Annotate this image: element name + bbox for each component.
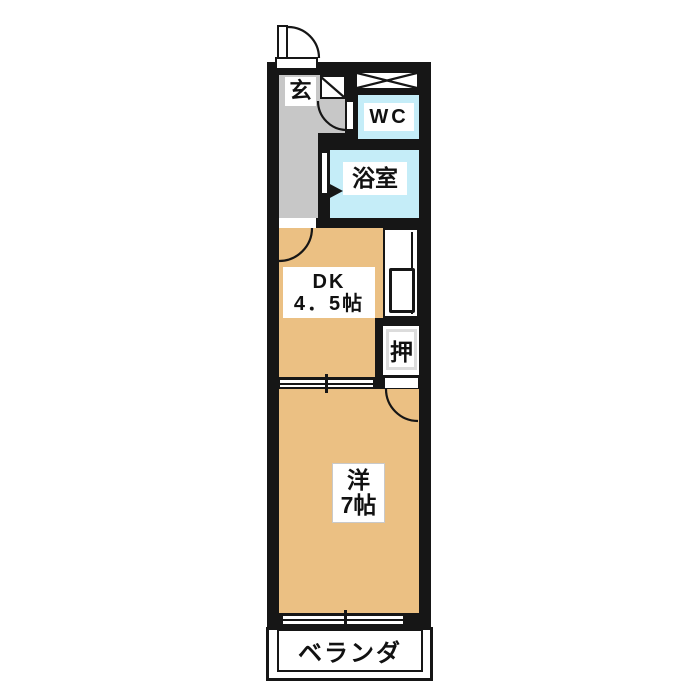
sliding-partition-tick	[325, 374, 328, 393]
closet-left-wall	[375, 318, 383, 389]
western-room-label-size: 7帖	[341, 493, 377, 518]
closet-label-box: 押	[386, 329, 417, 370]
shoe-cabinet-symbol	[320, 75, 346, 99]
veranda: ベランダ	[277, 629, 423, 672]
dk-label-size: 4．5帖	[294, 293, 364, 315]
closet-label: 押	[390, 333, 413, 367]
dk-label: DK 4．5帖	[283, 267, 375, 318]
entrance-door-arc	[288, 27, 319, 58]
genkan-label: 玄	[285, 77, 316, 106]
wc-door-leaf	[345, 100, 355, 131]
dk-door-opening	[279, 218, 316, 228]
entrance-door-leaf	[277, 25, 288, 59]
kitchen-sink	[389, 268, 415, 313]
wc-label: WC	[364, 103, 414, 131]
western-room-label: 洋 7帖	[332, 463, 385, 523]
bath-label: 浴室	[343, 162, 407, 195]
floor-plan: ベランダ 玄 WC 浴室 DK 4．5帖 押 洋 7帖	[0, 0, 700, 700]
western-room-door-opening	[385, 378, 418, 388]
veranda-label: ベランダ	[298, 633, 402, 668]
western-room-label-name: 洋	[347, 468, 370, 493]
bath-door-leaf	[320, 151, 329, 195]
dk-label-name: DK	[313, 271, 346, 293]
veranda-window-symbol	[283, 614, 403, 626]
room-genkan-corridor	[279, 133, 318, 218]
dead-space-x-box	[355, 71, 419, 90]
